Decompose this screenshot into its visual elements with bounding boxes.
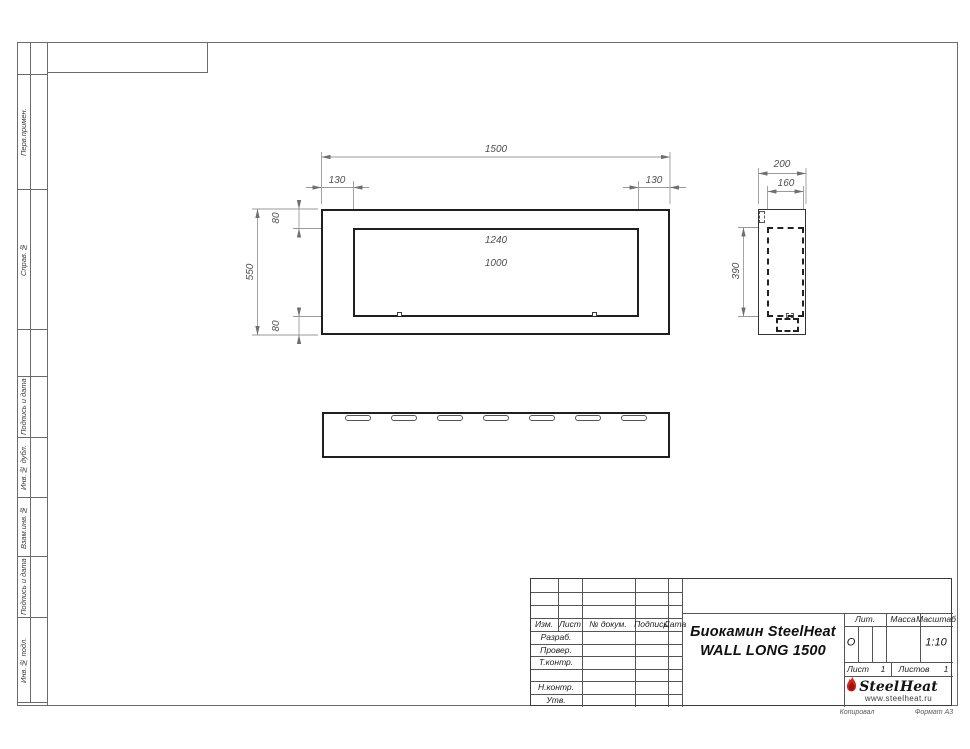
col-ndokum: № докум. — [589, 620, 626, 629]
dim-side-inner-depth: 160 — [776, 179, 797, 189]
scale-label: Масштаб — [916, 615, 956, 624]
logo-steel-text: Steel — [859, 680, 899, 694]
col-izm: Изм. — [535, 620, 553, 629]
row-razrab: Разраб. — [541, 633, 572, 642]
vent-slot — [621, 415, 647, 421]
vent-slot — [575, 415, 601, 421]
flame-icon — [844, 676, 859, 692]
vent-slot — [529, 415, 555, 421]
dim-front-height: 550 — [246, 262, 256, 283]
sheet-label: Лист — [847, 665, 869, 674]
sheet-value: 1 — [881, 665, 886, 674]
burner-tab-right — [592, 312, 597, 316]
burner-tab-left — [397, 312, 402, 316]
lit-value: О — [847, 638, 856, 649]
row-tkontr: Т.контр. — [539, 658, 573, 667]
dim-front-left-offset: 130 — [327, 176, 348, 186]
side-view-bottom-box — [776, 318, 799, 332]
vent-slot — [437, 415, 463, 421]
sheets-value: 1 — [944, 665, 949, 674]
vent-slot — [391, 415, 417, 421]
dim-front-top-offset: 80 — [272, 210, 282, 225]
dim-front-bottom-offset: 80 — [272, 318, 282, 333]
drawing-sheet: Перв.примен. Справ.№ Подпись и дата Инв.… — [0, 0, 970, 749]
massa-label: Масса — [890, 615, 915, 624]
company-logo: Steel Heat www.steelheat.ru — [844, 676, 953, 707]
vent-slot — [483, 415, 509, 421]
dim-front-right-offset: 130 — [644, 176, 665, 186]
logo-heat-text: Heat — [900, 680, 938, 694]
title-line-2: WALL LONG 1500 — [700, 644, 826, 660]
row-utv: Утв. — [546, 696, 565, 705]
dim-front-width: 1500 — [483, 145, 509, 155]
format-label: Формат А3 — [915, 709, 953, 716]
scale-value: 1:10 — [925, 638, 946, 649]
lit-label: Лит. — [855, 615, 875, 624]
kopiroval-label: Копировал — [840, 709, 875, 716]
row-prover: Провер. — [540, 646, 572, 655]
dim-side-depth: 200 — [772, 160, 793, 170]
col-list: Лист — [559, 620, 581, 629]
vent-slot — [345, 415, 371, 421]
sheets-label: Листов — [899, 665, 930, 674]
dim-opening-width: 1240 — [483, 236, 509, 246]
side-view-inner-dashed — [767, 227, 804, 317]
dim-burner-width: 1000 — [483, 259, 509, 269]
title-block: Изм. Лист № докум. Подпись Дата Разраб. … — [530, 578, 952, 706]
title-line-1: Биокамин SteelHeat — [690, 625, 836, 641]
row-nkontr: Н.контр. — [538, 683, 574, 692]
logo-url: www.steelheat.ru — [865, 695, 932, 703]
side-view-top-detail — [759, 211, 765, 223]
dim-side-inner-height: 390 — [732, 261, 742, 282]
document-title: Биокамин SteelHeat WALL LONG 1500 — [682, 613, 844, 671]
